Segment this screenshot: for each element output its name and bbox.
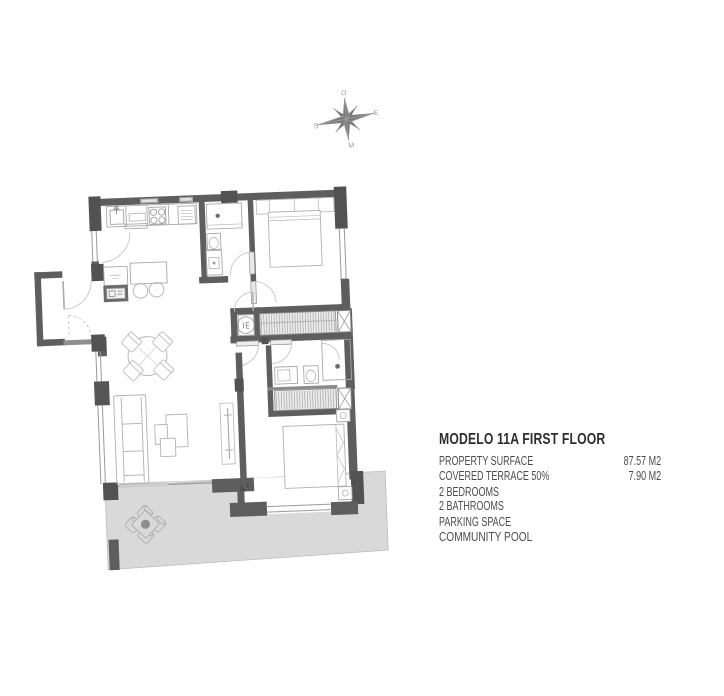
svg-text:E: E	[373, 110, 379, 117]
svg-text:M: M	[348, 142, 355, 150]
svg-text:S: S	[313, 123, 319, 130]
svg-text:O: O	[341, 90, 348, 98]
